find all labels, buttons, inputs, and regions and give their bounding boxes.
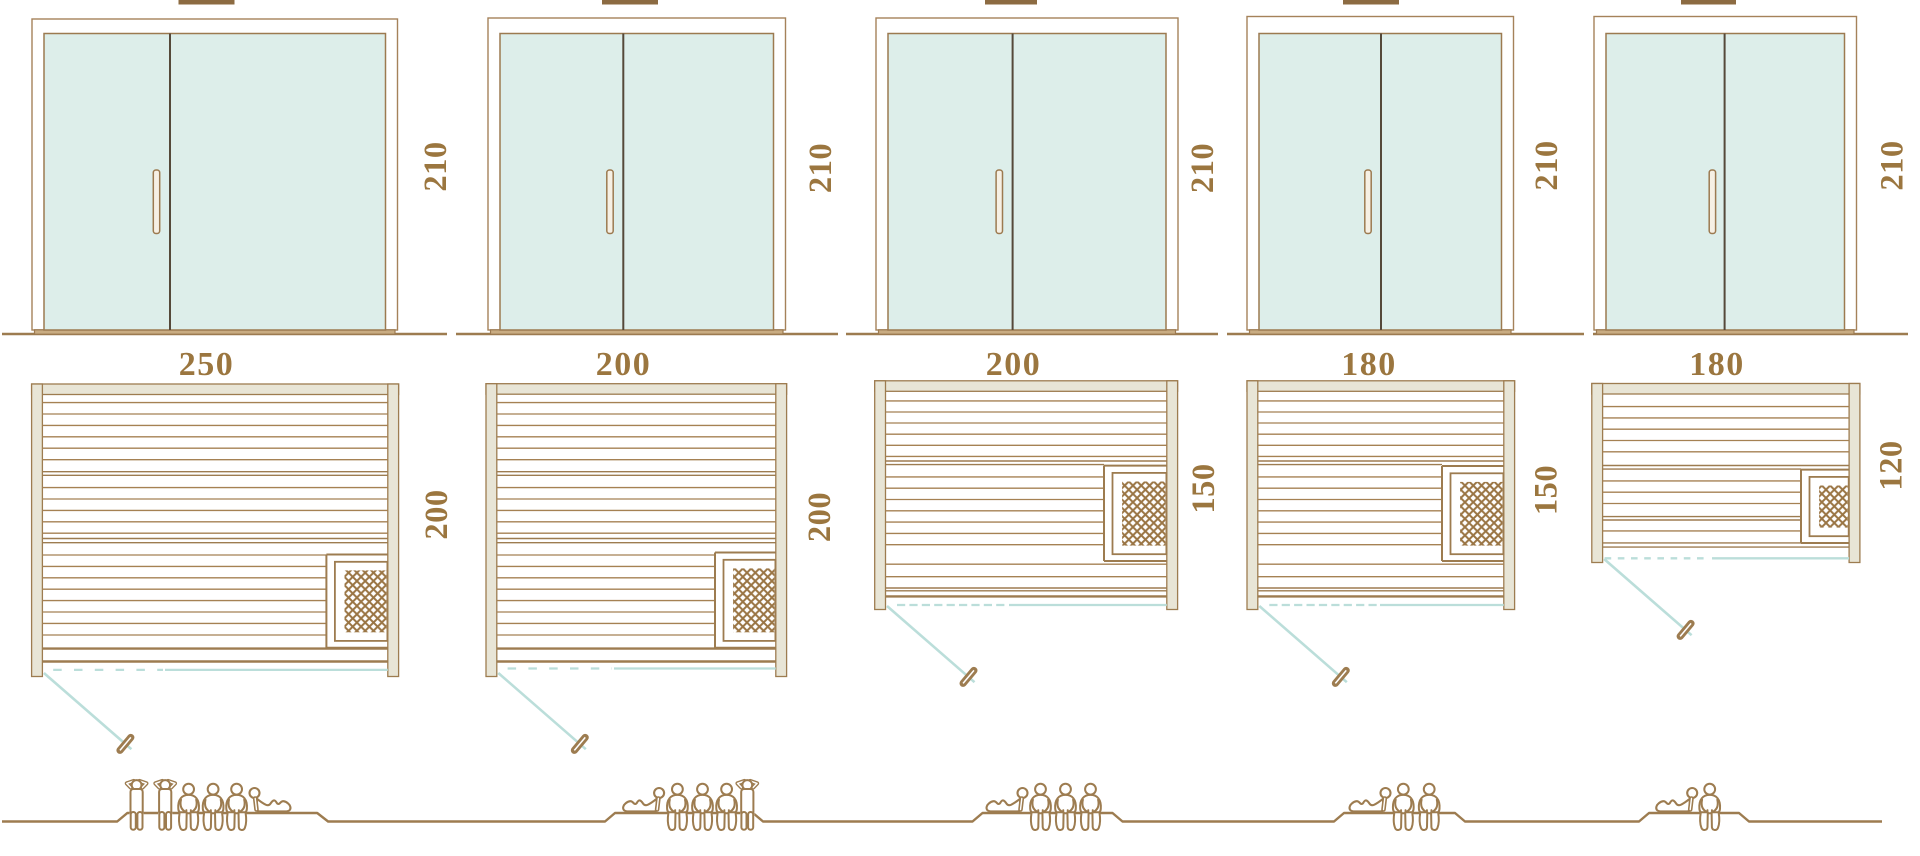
svg-text:180: 180 [1341, 346, 1397, 383]
svg-text:210: 210 [1185, 143, 1221, 193]
svg-text:210: 210 [1529, 140, 1565, 190]
svg-text:180: 180 [1689, 346, 1745, 383]
svg-text:210: 210 [1875, 140, 1911, 190]
svg-text:200: 200 [596, 346, 652, 383]
svg-text:150: 150 [1186, 463, 1222, 513]
svg-text:250: 250 [179, 346, 235, 383]
svg-text:200: 200 [986, 346, 1042, 383]
svg-text:200: 200 [802, 492, 838, 542]
svg-text:150: 150 [1529, 465, 1565, 515]
svg-text:200: 200 [419, 489, 455, 539]
svg-text:120: 120 [1874, 440, 1910, 490]
svg-text:210: 210 [418, 141, 454, 191]
svg-text:210: 210 [803, 143, 839, 193]
